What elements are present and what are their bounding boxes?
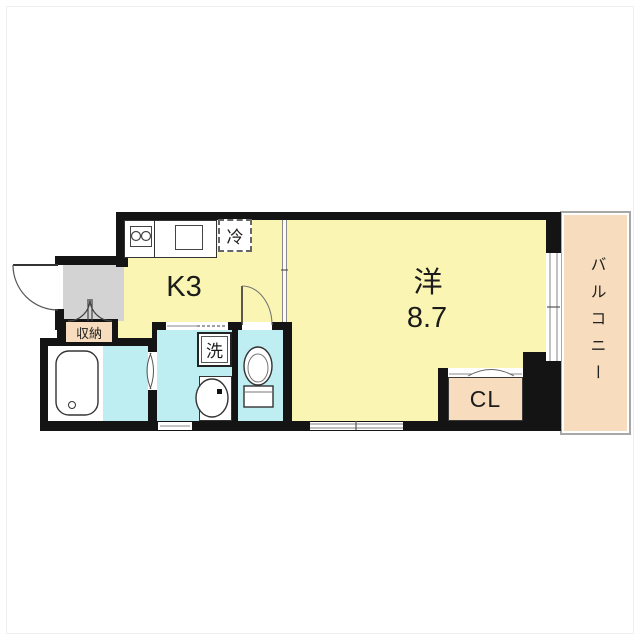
refrigerator-label: 冷 [227, 223, 244, 248]
entrance-top-wall [55, 256, 125, 265]
balcony-label: バルコニー [584, 256, 608, 391]
kitchen-room-partition [282, 220, 287, 322]
closet-door-strip [448, 368, 523, 377]
bottom-window [310, 422, 403, 430]
washroom-door-opening [166, 322, 228, 330]
washing-machine-label: 洗 [206, 337, 223, 362]
closet-left-wall [438, 368, 448, 431]
entrance-floor [63, 264, 124, 322]
washroom-vent-window [158, 422, 192, 430]
counter-divider [154, 221, 155, 257]
toilet-door-opening [242, 322, 272, 330]
storage-label: 収納 [76, 323, 102, 342]
refrigerator-space: 冷 [218, 219, 252, 252]
closet-right-pillar [523, 352, 561, 431]
balcony-window [546, 253, 561, 361]
kitchen-floor-lower [118, 321, 152, 339]
washing-machine-inner: 洗 [201, 336, 228, 363]
balcony-floor: バルコニー [564, 215, 627, 431]
closet-label: CL [470, 386, 501, 413]
storage-closet: 収納 [66, 322, 112, 342]
basin-counter [199, 376, 232, 421]
top-wall [118, 212, 561, 220]
western-room-label: 洋 [398, 263, 458, 297]
sink-icon [175, 225, 203, 250]
toilet-room-floor [238, 330, 283, 421]
western-room-size: 8.7 [392, 301, 462, 335]
kitchen-label: K3 [154, 271, 214, 303]
bathroom-floor [103, 346, 148, 421]
stove-burners-icon [130, 226, 152, 247]
washing-machine-icon: 洗 [197, 332, 232, 367]
closet-box: CL [448, 377, 523, 421]
floor-plan: バルコニー 収納 CL [0, 0, 640, 640]
balcony-area: バルコニー [560, 211, 631, 435]
